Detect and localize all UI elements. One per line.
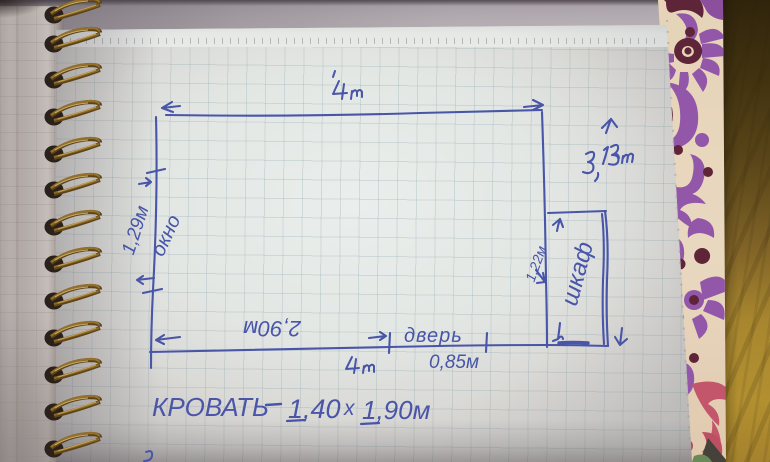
svg-text:шкаф: шкаф: [556, 239, 599, 308]
svg-text:окно: окно: [147, 212, 185, 260]
svg-text:КРОВАТЬ: КРОВАТЬ: [152, 392, 269, 422]
svg-text:1,90м: 1,90м: [362, 395, 431, 425]
svg-text:2,90м: 2,90м: [243, 316, 302, 341]
svg-text:0,85м: 0,85м: [429, 352, 479, 373]
svg-text:х: х: [343, 397, 356, 420]
svg-text:дверь: дверь: [404, 325, 463, 347]
